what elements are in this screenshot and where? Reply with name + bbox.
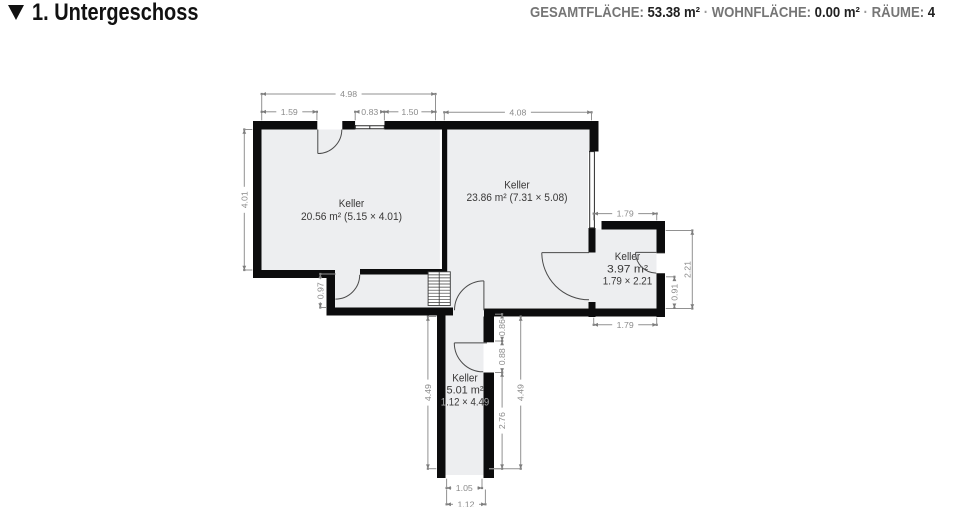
svg-text:20.56 m² (5.15 × 4.01): 20.56 m² (5.15 × 4.01): [301, 211, 402, 223]
svg-text:1.79 × 2.21: 1.79 × 2.21: [603, 276, 653, 288]
svg-text:2.21: 2.21: [682, 261, 692, 278]
svg-text:3.97 m²: 3.97 m²: [607, 264, 648, 276]
svg-text:4.98: 4.98: [340, 89, 357, 99]
svg-text:Keller: Keller: [615, 251, 641, 263]
svg-text:1.59: 1.59: [281, 107, 298, 117]
svg-text:5.01 m²: 5.01 m²: [447, 385, 484, 397]
svg-text:23.86 m² (7.31 × 5.08): 23.86 m² (7.31 × 5.08): [467, 192, 568, 204]
svg-text:1.79: 1.79: [617, 209, 634, 219]
svg-text:1.79: 1.79: [617, 320, 634, 330]
svg-text:1.50: 1.50: [401, 107, 418, 117]
svg-text:0.86: 0.86: [497, 319, 507, 336]
svg-text:4.49: 4.49: [423, 384, 433, 401]
svg-text:4.01: 4.01: [239, 191, 249, 208]
svg-text:0.97: 0.97: [315, 282, 325, 299]
svg-text:4.08: 4.08: [509, 107, 526, 117]
svg-text:0.83: 0.83: [361, 107, 378, 117]
svg-text:0.91: 0.91: [669, 284, 679, 301]
svg-text:2.76: 2.76: [497, 412, 507, 429]
svg-text:1.05: 1.05: [456, 483, 473, 493]
svg-text:Keller: Keller: [452, 373, 478, 385]
svg-text:1.12 × 4.49: 1.12 × 4.49: [441, 397, 490, 409]
svg-text:4.49: 4.49: [516, 384, 526, 401]
svg-text:0.88: 0.88: [497, 348, 507, 365]
svg-text:Keller: Keller: [339, 198, 365, 210]
svg-text:1.12: 1.12: [458, 499, 475, 507]
svg-text:Keller: Keller: [504, 180, 530, 192]
